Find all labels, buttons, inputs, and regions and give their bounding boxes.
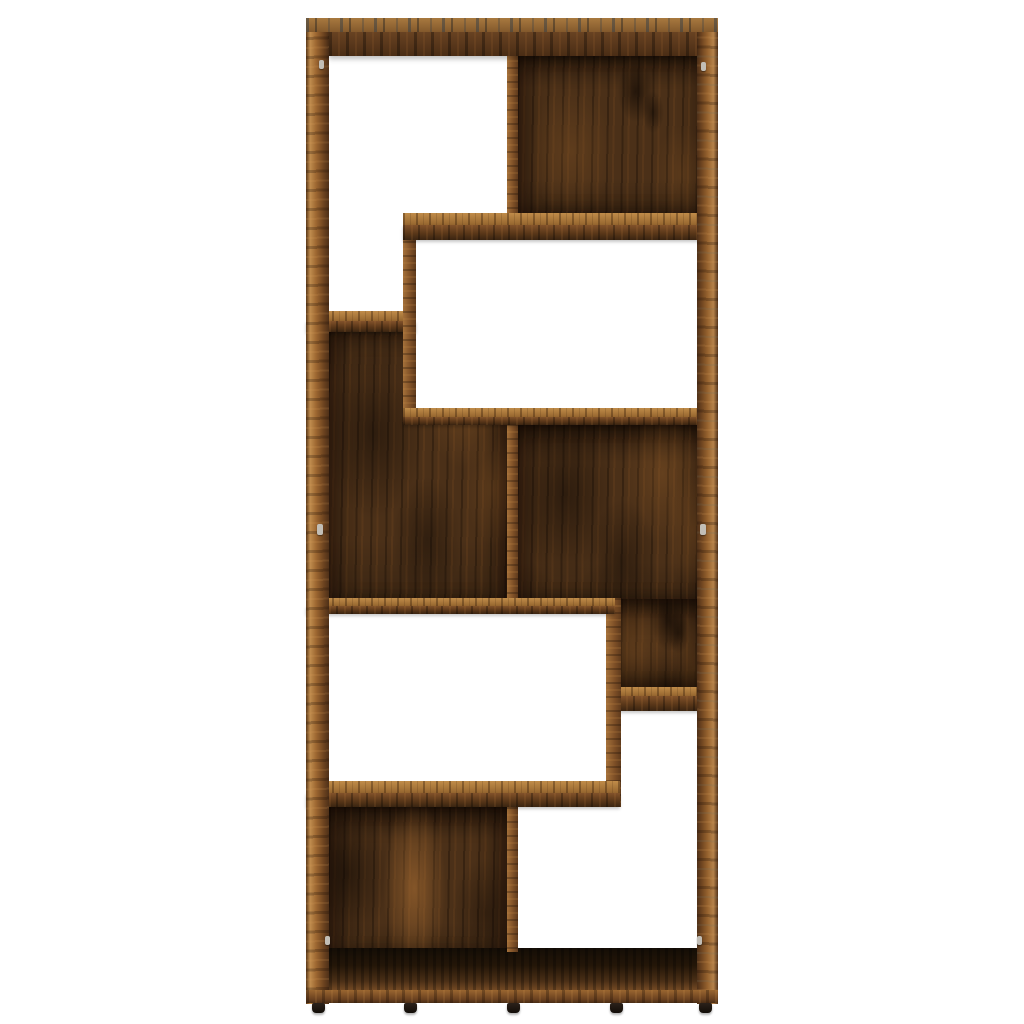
shelf-lower-left-top-face [306,598,615,606]
shelf-upper-front-edge [403,225,708,240]
shelf-step-right-front-edge [618,696,708,711]
shelf-upper [403,213,708,240]
side-panel-right [697,18,718,1004]
back-panel-mid-right [518,424,708,601]
top-board [306,18,718,32]
shelf-step-right [618,687,708,711]
divider-top-middle [507,53,518,213]
shelf-bottom-top-face [306,781,620,793]
shelf-bottom-front-edge [306,793,620,807]
shelf-lower-left [306,598,615,614]
foot-5 [699,1003,712,1013]
bottom-board-interior [329,948,697,992]
foot-4 [610,1003,623,1013]
top-board-underside [329,30,697,56]
back-panel-step-right [606,599,708,690]
foot-3 [507,1003,520,1013]
shelf-middle-top-face [403,408,708,417]
shelf-pin-mid-right [700,524,706,535]
foot-1 [312,1003,325,1013]
open-compartment-row4 [329,613,606,783]
shelf-step-right-top-face [618,687,708,696]
shelf-bottom [306,781,620,807]
shelf-pin-top-left [319,60,324,69]
shelf-middle-front-edge [403,417,708,425]
shelf-pin-bottom-right [697,936,702,945]
divider-row4-right [606,598,621,807]
divider-bottom-middle [507,807,518,952]
bookcase-product-image [0,0,1024,1024]
bottom-board-front-edge [306,990,718,1003]
back-panel-top-right [518,53,708,213]
shelf-middle [403,408,708,425]
shelf-upper-top-face [403,213,708,225]
shelf-pin-mid-left [317,524,323,535]
side-panel-left [306,18,329,1004]
product-photo-canvas [0,0,1024,1024]
open-compartment-row2 [416,240,697,408]
shelf-lower-left-front-edge [306,606,615,614]
shelf-pin-top-right [701,62,706,71]
foot-2 [404,1003,417,1013]
back-panel-bottom-left [329,807,507,955]
shelf-pin-bottom-left [325,936,330,945]
divider-row2-left [403,213,416,412]
divider-mid-middle [507,410,518,601]
